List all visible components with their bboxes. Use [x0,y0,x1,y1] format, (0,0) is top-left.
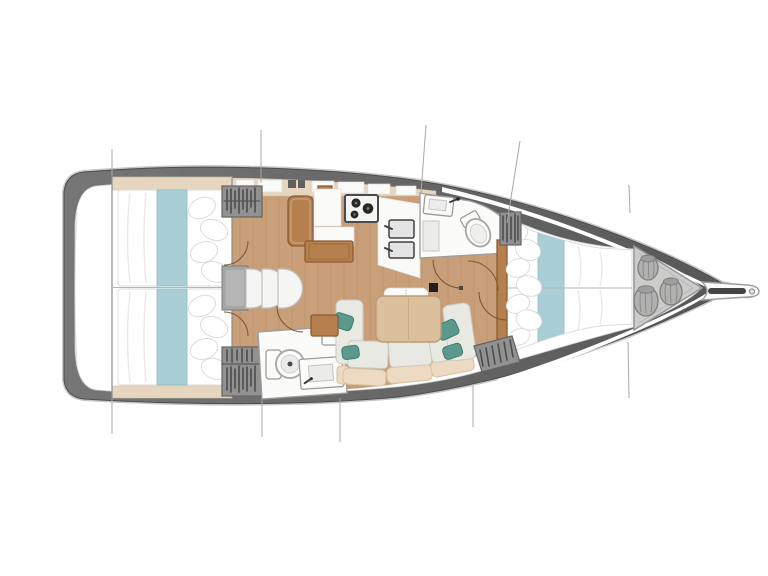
washbasin [429,199,447,211]
toilet-drain [288,362,293,367]
roof-panel [338,182,364,193]
roof-panel [396,186,416,195]
galley-locker [314,189,341,226]
landing-inner [226,270,244,306]
bowsprit [702,282,759,300]
deck-plan-svg [0,0,768,576]
shower-seat [423,221,439,251]
headboard-trim-top [112,177,232,190]
companionway [222,266,303,310]
aft-head [258,326,347,399]
roof-hatch [288,180,296,188]
aft-berth-port [118,190,232,286]
aft-berth-starboard [118,289,232,385]
yacht-layout-diagram [0,0,768,576]
bag-top [664,278,679,285]
teal-cushion [341,345,360,360]
wardrobe-aft-port [222,186,262,217]
bowsprit-fitting [749,289,754,294]
sail-bag [660,278,682,305]
bed-runner-teal [157,190,187,286]
bed-runner-teal [157,289,187,385]
anchor-roller [708,288,746,294]
roof-panel [368,184,390,194]
nav-seat [288,196,313,246]
side-cabinet [311,315,338,336]
mast-step [429,283,438,292]
wardrobe-forward-top [500,212,521,245]
faucet-head [456,197,460,201]
bag-top [638,286,654,294]
rig-line [628,342,629,398]
wardrobe-aft-starboard [222,347,262,396]
bag-top [641,255,655,262]
stove [345,195,378,222]
back-cushion [343,368,387,386]
rig-line [629,185,630,213]
washbasin-unit [423,195,454,217]
headboard-trim-bottom [112,386,232,398]
sail-bag [634,286,658,316]
sail-bag [638,255,658,280]
sink [389,242,414,258]
roof-hatch [298,180,305,188]
